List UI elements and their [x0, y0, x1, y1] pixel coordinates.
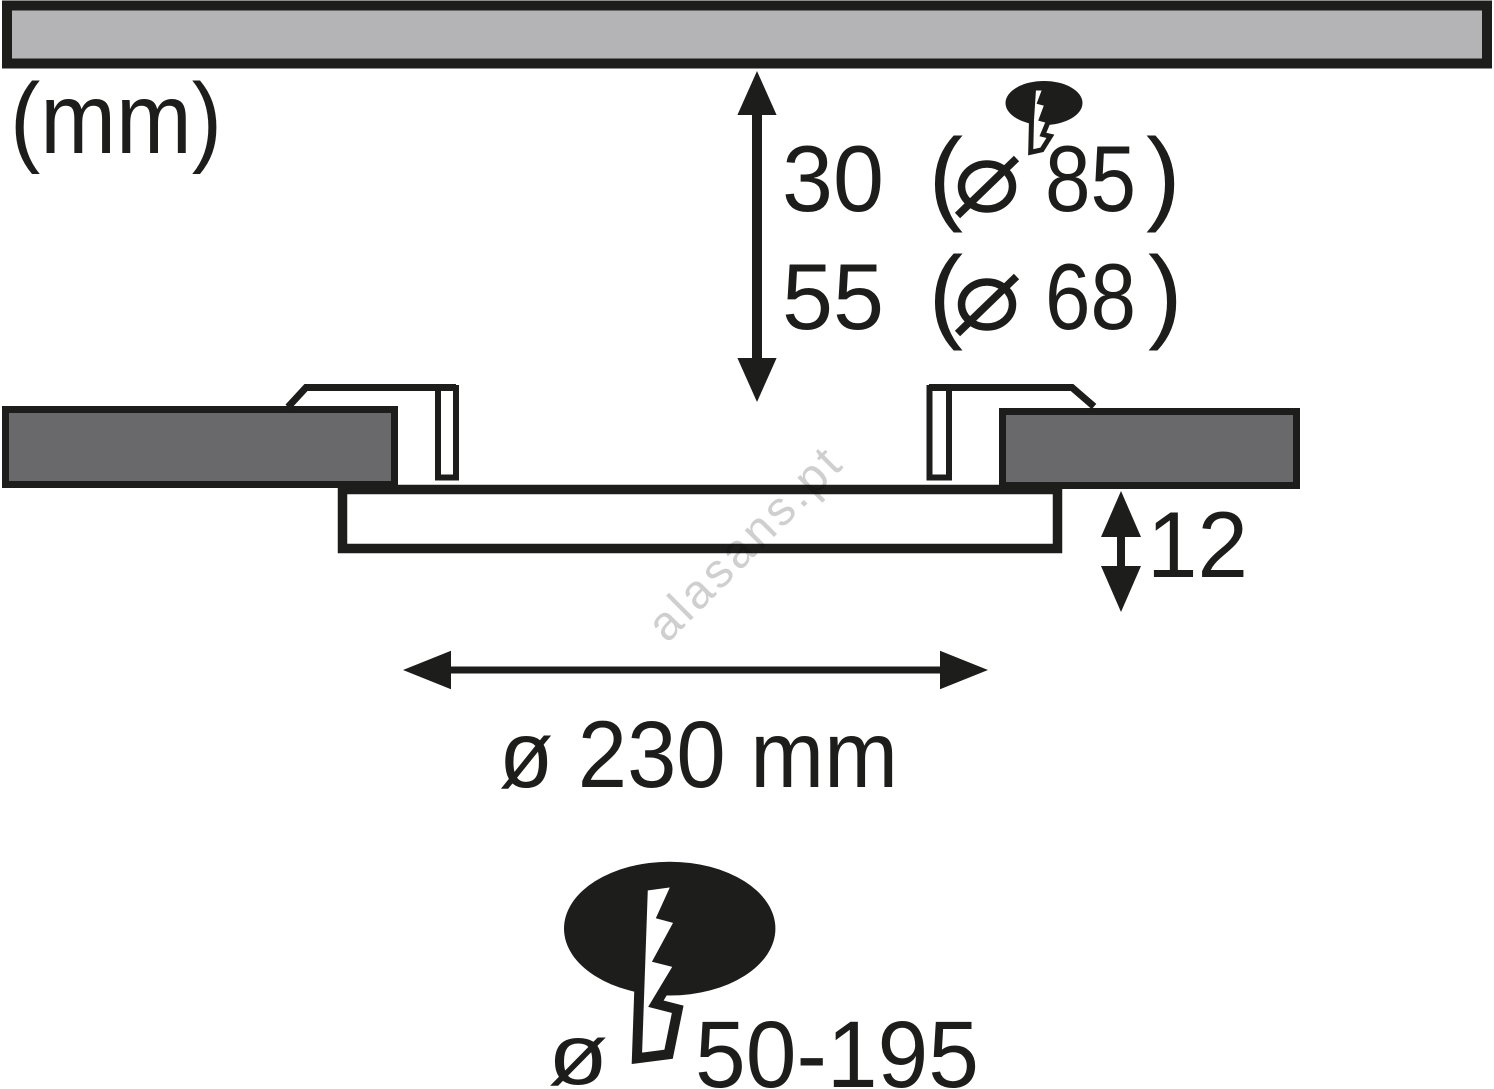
svg-text:(: (: [929, 236, 964, 352]
svg-text:85: 85: [1045, 126, 1136, 231]
svg-text:30: 30: [782, 126, 884, 231]
svg-text:55: 55: [782, 244, 884, 349]
svg-text:12: 12: [1147, 492, 1248, 597]
svg-text:68: 68: [1045, 244, 1136, 349]
svg-text:ø: ø: [548, 1008, 608, 1089]
svg-text:): ): [1146, 118, 1181, 234]
svg-text:): ): [1148, 236, 1183, 352]
svg-text:(: (: [929, 118, 964, 234]
svg-text:ø 230 mm: ø 230 mm: [499, 702, 898, 808]
svg-text:50-195: 50-195: [695, 1002, 979, 1089]
svg-text:(mm): (mm): [10, 63, 222, 175]
